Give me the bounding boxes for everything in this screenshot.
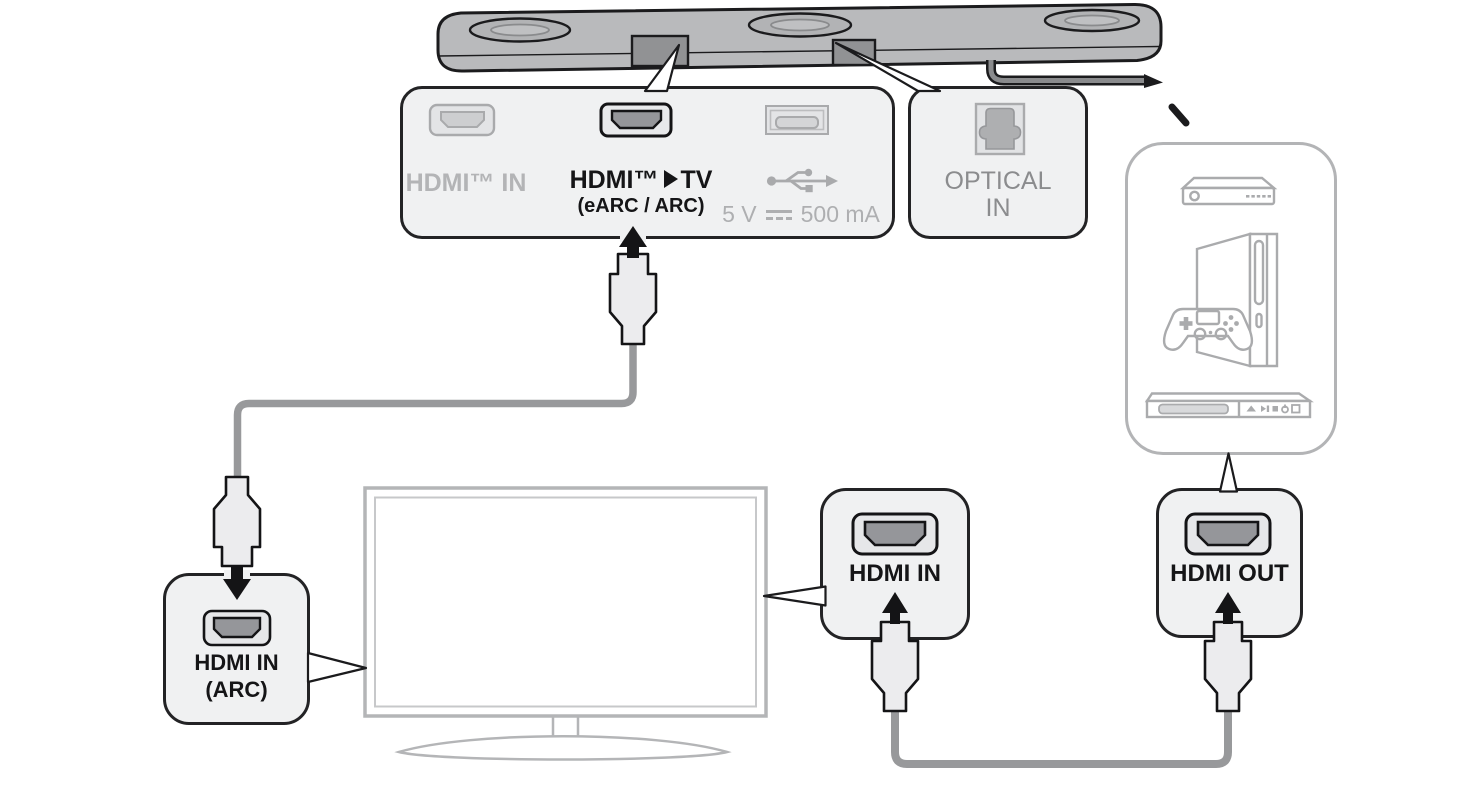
hdmi-cable-soundbar-to-tv — [238, 342, 634, 480]
tv-arc-port-label: HDMI IN (ARC) — [166, 649, 307, 703]
hdmi-tv-port-label: HDMI™TV — [560, 166, 722, 195]
optical-in-panel: OPTICAL IN — [908, 86, 1088, 239]
soundbar-port-recess — [632, 36, 688, 66]
device-hdmi-out-label: HDMI OUT — [1159, 560, 1300, 588]
callout-optical-to-soundbar — [836, 43, 940, 91]
hdmi-plug-into-arc — [214, 477, 260, 566]
soundbar-rear-port-panel: HDMI™ IN HDMI™TV (eARC / ARC) 5 V 500 mA — [400, 86, 895, 239]
tv-hdmi-in-panel: HDMI IN — [820, 488, 970, 640]
callout-hdmiin-to-tv — [764, 587, 826, 606]
tv-icon — [365, 488, 766, 760]
hdmi-plug-top — [610, 254, 656, 344]
device-hdmi-out-panel: HDMI OUT — [1156, 488, 1303, 638]
callout-panel-to-soundbar — [645, 45, 679, 91]
soundbar-connection-diagram: HDMI™ IN HDMI™TV (eARC / ARC) 5 V 500 mA… — [0, 0, 1465, 812]
usb-port-label: 5 V 500 mA — [715, 201, 887, 228]
external-devices-box — [1125, 142, 1337, 455]
tv-stand-base — [399, 736, 727, 759]
soundbar-feet — [470, 10, 1139, 42]
dc-voltage-icon — [764, 208, 794, 222]
soundbar-optical-recess — [833, 40, 875, 65]
arrow-right-triangle-icon — [664, 170, 678, 188]
callout-arc-to-tv — [308, 653, 366, 682]
optical-in-label: OPTICAL IN — [911, 168, 1085, 222]
tv-arc-port-panel: HDMI IN (ARC) — [163, 573, 310, 725]
callout-hdmiout-to-devices — [1220, 454, 1237, 492]
tv-hdmi-in-label: HDMI IN — [823, 560, 967, 588]
hdmi-in-port-label: HDMI™ IN — [400, 169, 532, 198]
hdmi-cable-device-to-tv — [895, 709, 1228, 764]
hdmi-tv-port-sublabel: (eARC / ARC) — [560, 195, 722, 218]
cord-continuation-tick — [1172, 107, 1186, 123]
